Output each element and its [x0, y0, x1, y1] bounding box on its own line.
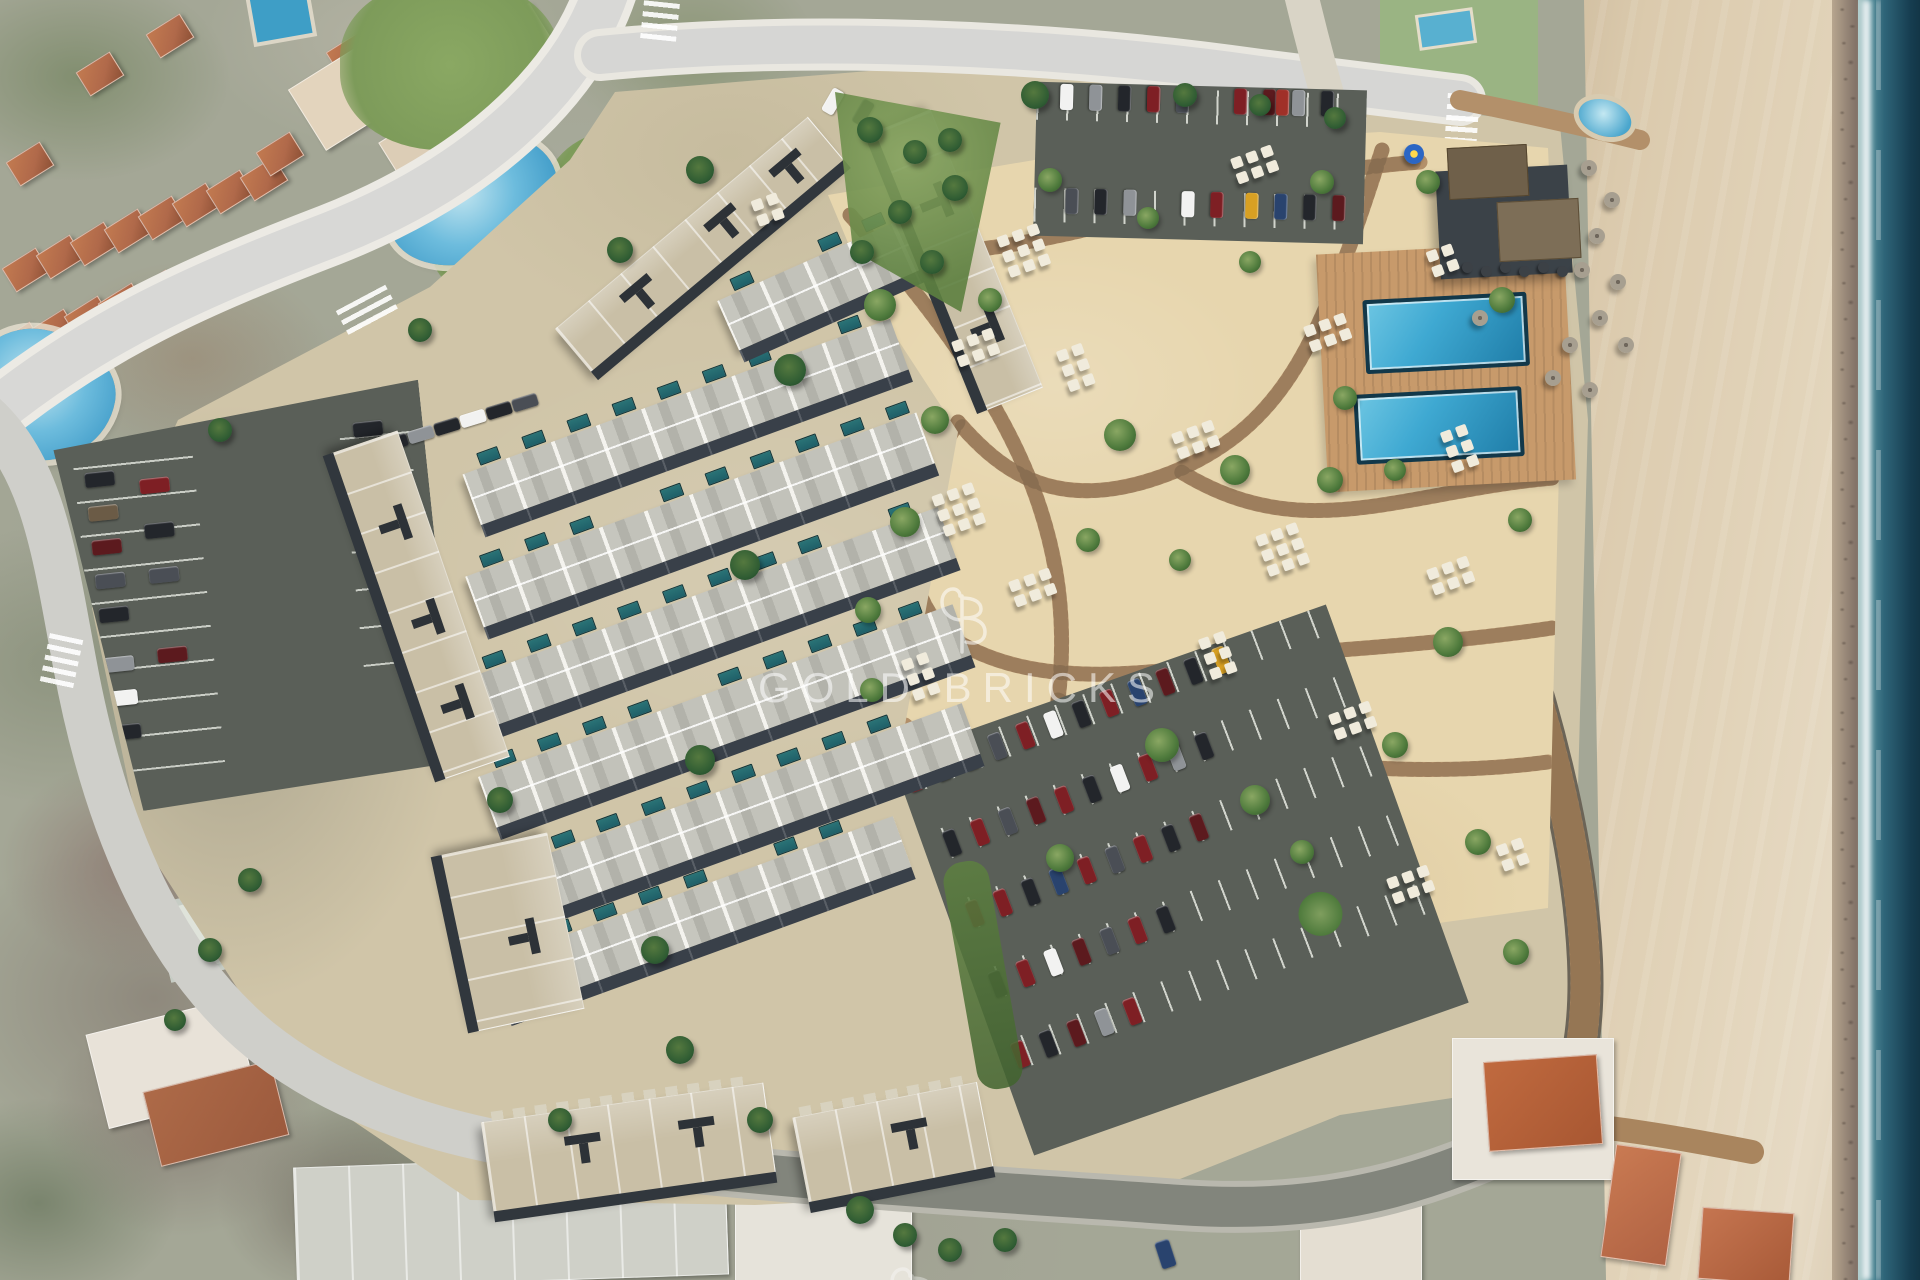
straw-parasol [1589, 228, 1605, 244]
parasol [1250, 165, 1264, 179]
parasol [961, 482, 975, 496]
parasol [771, 207, 785, 221]
parasol [1296, 552, 1310, 566]
parasol [1017, 243, 1031, 257]
parasol [1406, 885, 1420, 899]
palm-tree [1173, 83, 1197, 107]
parasol [1028, 588, 1042, 602]
parasol [1281, 557, 1295, 571]
parasol [1071, 343, 1085, 357]
parasol-cluster [996, 221, 1058, 283]
parasol [1323, 333, 1337, 347]
shrub [1240, 785, 1270, 815]
parasol [1056, 348, 1070, 362]
parasol [921, 667, 935, 681]
palm-tree [487, 787, 513, 813]
parasol [942, 523, 956, 537]
parasol [1209, 666, 1223, 680]
parasol [1191, 440, 1205, 454]
parasol [1044, 583, 1058, 597]
lounger [1519, 266, 1530, 277]
parasol [1386, 875, 1400, 889]
shrub [1489, 287, 1515, 313]
palm-tree [993, 1228, 1017, 1252]
lounger [1538, 262, 1549, 273]
parasol [1416, 864, 1430, 878]
palm-tree [198, 938, 222, 962]
parasol [987, 343, 1001, 357]
parasol [1462, 571, 1476, 585]
parasol [1032, 238, 1046, 252]
parasol [1037, 253, 1051, 267]
shrub [1220, 455, 1250, 485]
straw-parasol [1618, 337, 1634, 353]
parasol [1348, 721, 1362, 735]
parasol [1451, 459, 1465, 473]
parasol [1013, 593, 1027, 607]
parasol [1431, 581, 1445, 595]
parasol [1460, 439, 1474, 453]
parasol [1456, 555, 1470, 569]
shrub [1038, 168, 1062, 192]
parasol [1343, 706, 1357, 720]
parasol [952, 502, 966, 516]
parasol [1266, 160, 1280, 174]
parasol [1198, 636, 1212, 650]
parasol [1203, 651, 1217, 665]
parasol [1303, 323, 1317, 337]
straw-parasol [1581, 160, 1597, 176]
shrub [1382, 732, 1408, 758]
parasol [1426, 566, 1440, 580]
parasol [906, 672, 920, 686]
palm-tree [1249, 94, 1271, 116]
parasol-cluster [1171, 418, 1227, 464]
parasol [750, 198, 764, 212]
parasol [1358, 700, 1372, 714]
parasol-cluster [750, 190, 791, 231]
parasol-cluster [1056, 341, 1102, 397]
parasol [1422, 880, 1436, 894]
parasol [1333, 726, 1347, 740]
parasol [766, 192, 780, 206]
parasol [1213, 631, 1227, 645]
parasol [912, 687, 926, 701]
parasol [1291, 537, 1305, 551]
parasol [1201, 419, 1215, 433]
lounger [1481, 266, 1492, 277]
parasol [1401, 870, 1415, 884]
palm-tree [1324, 107, 1346, 129]
parasol [1276, 542, 1290, 556]
shrub [1384, 459, 1406, 481]
shrub [1145, 728, 1179, 762]
parasol [1007, 264, 1021, 278]
parasol [1308, 338, 1322, 352]
parasol [1218, 646, 1232, 660]
straw-parasol [1604, 192, 1620, 208]
shrub [1137, 207, 1159, 229]
parasol-cluster [951, 326, 1007, 372]
parasol [901, 657, 915, 671]
palm-tree [1021, 81, 1049, 109]
parasol [1023, 573, 1037, 587]
palm-tree [641, 936, 669, 964]
parasol [1446, 258, 1460, 272]
shrub [1503, 939, 1529, 965]
parasol [1224, 661, 1238, 675]
straw-parasol [1562, 337, 1578, 353]
parasol [1328, 711, 1342, 725]
parasol-cluster [1426, 554, 1482, 600]
parasol [1501, 858, 1515, 872]
parasol [966, 333, 980, 347]
shrub [921, 406, 949, 434]
parasol [1495, 843, 1509, 857]
shrub [890, 507, 920, 537]
palm-tree [938, 128, 962, 152]
parasol-cluster [1255, 520, 1317, 582]
parasol-cluster [1386, 863, 1442, 909]
parasol [946, 487, 960, 501]
parasol [967, 497, 981, 511]
lounger [1462, 262, 1473, 273]
parasol [1261, 548, 1275, 562]
parasol [1011, 228, 1025, 242]
parasol [1067, 378, 1081, 392]
parasol-cluster [901, 650, 947, 706]
palm-tree [607, 237, 633, 263]
parasol [971, 348, 985, 362]
parasol [1391, 890, 1405, 904]
shrub [1076, 528, 1100, 552]
shrub [1416, 170, 1440, 194]
parasol [1026, 223, 1040, 237]
parasol [1270, 527, 1284, 541]
shrub [1046, 844, 1074, 872]
garden-strip [940, 858, 1025, 1092]
parasol-cluster [1303, 311, 1359, 357]
parasol [916, 652, 930, 666]
shrub [1290, 840, 1314, 864]
lounger [1557, 266, 1568, 277]
parasol [1186, 425, 1200, 439]
parasol [1339, 328, 1353, 342]
parasol [1061, 363, 1075, 377]
parasol-cluster [931, 480, 993, 542]
parasol [956, 353, 970, 367]
palm-tree [850, 240, 874, 264]
parasol [1245, 150, 1259, 164]
shrub [1465, 829, 1491, 855]
palm-tree [903, 140, 927, 164]
parasol [1511, 837, 1525, 851]
palm-tree [888, 200, 912, 224]
shrub [1433, 627, 1463, 657]
parasol [1425, 249, 1439, 263]
parasol [1008, 578, 1022, 592]
parasol-cluster [1440, 422, 1486, 478]
straw-parasol [1610, 274, 1626, 290]
parasol [1076, 358, 1090, 372]
palm-tree [666, 1036, 694, 1064]
palm-tree [208, 418, 232, 442]
shrub [1104, 419, 1136, 451]
parasol [1455, 424, 1469, 438]
parasol [927, 682, 941, 696]
parasol [1516, 852, 1530, 866]
palm-tree [730, 550, 760, 580]
parasol [951, 338, 965, 352]
palm-tree [942, 175, 968, 201]
shrub [1169, 549, 1191, 571]
parasol [1364, 716, 1378, 730]
aerial-photo: GOLD BRICKS [0, 0, 1920, 1280]
parasol [1441, 243, 1455, 257]
parasol [1466, 454, 1480, 468]
palm-tree [548, 1108, 572, 1132]
palm-tree [408, 318, 432, 342]
parasol [1431, 264, 1445, 278]
parasol [972, 512, 986, 526]
straw-parasol [1582, 382, 1598, 398]
parasol [756, 213, 770, 227]
parasol [1207, 435, 1221, 449]
parasol [1260, 144, 1274, 158]
straw-parasol [1592, 310, 1608, 326]
parasol [1285, 522, 1299, 536]
palm-tree [774, 354, 806, 386]
parasol [1446, 576, 1460, 590]
shrub [1508, 508, 1532, 532]
parasol-cluster [1230, 143, 1286, 189]
parasol [996, 234, 1010, 248]
palm-tree [747, 1107, 773, 1133]
parasol [1318, 318, 1332, 332]
parasol-cluster [1328, 699, 1384, 745]
palm-tree [164, 1009, 186, 1031]
palm-tree [686, 156, 714, 184]
parasol [1230, 155, 1244, 169]
parasol [1441, 561, 1455, 575]
parasol-cluster [1008, 566, 1064, 612]
shrub [1333, 386, 1357, 410]
palm-tree [920, 250, 944, 274]
shrub [864, 289, 896, 321]
palm-tree [846, 1196, 874, 1224]
parasol [981, 327, 995, 341]
parasol [1176, 445, 1190, 459]
palm-tree [857, 117, 883, 143]
parasol [1333, 312, 1347, 326]
shrub [1239, 251, 1261, 273]
palm-tree [238, 868, 262, 892]
palm-tree [685, 745, 715, 775]
parasol-cluster [1425, 241, 1466, 282]
lounger [1500, 262, 1511, 273]
shrub [860, 678, 884, 702]
palm-tree [938, 1238, 962, 1262]
parasol [1171, 430, 1185, 444]
shrub [1310, 170, 1334, 194]
parasol [1266, 563, 1280, 577]
parasol [1038, 567, 1052, 581]
straw-parasol [1545, 370, 1561, 386]
shrub [978, 288, 1002, 312]
palm-tree [893, 1223, 917, 1247]
shrub [855, 597, 881, 623]
straw-parasol [1472, 310, 1488, 326]
parasol [1022, 258, 1036, 272]
shrub [1317, 467, 1343, 493]
parasol [1235, 170, 1249, 184]
parasol [937, 508, 951, 522]
parasol [1445, 444, 1459, 458]
parasol [931, 493, 945, 507]
parasol-cluster [1495, 835, 1536, 876]
parasol-cluster [1198, 629, 1244, 685]
parasol [957, 517, 971, 531]
parasol [1255, 533, 1269, 547]
parasol [1002, 249, 1016, 263]
vegetation-and-parasols [0, 0, 1920, 1280]
parasol [1082, 373, 1096, 387]
straw-parasol [1574, 262, 1590, 278]
parasol [1440, 429, 1454, 443]
